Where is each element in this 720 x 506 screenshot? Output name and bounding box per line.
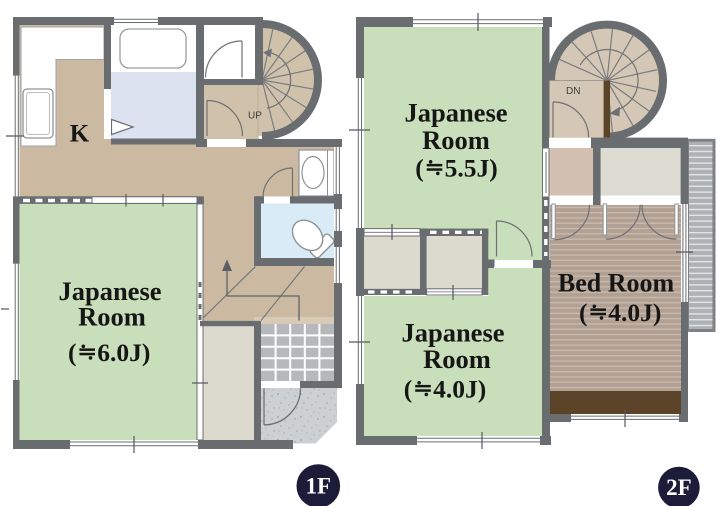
svg-text:(: (	[68, 338, 77, 367]
svg-text:(: (	[579, 298, 588, 327]
svg-text:1F: 1F	[306, 474, 332, 499]
svg-text:4.0J): 4.0J)	[433, 375, 486, 404]
svg-text:(: (	[415, 154, 424, 183]
svg-text:(: (	[404, 375, 413, 404]
svg-text:Room: Room	[423, 344, 491, 374]
svg-text:Room: Room	[422, 125, 490, 155]
svg-text:4.0J): 4.0J)	[608, 298, 661, 327]
svg-text:UP: UP	[248, 111, 262, 122]
svg-text:5.5J): 5.5J)	[445, 154, 498, 183]
svg-text:Bed Room: Bed Room	[558, 269, 675, 298]
svg-text:Japanese: Japanese	[401, 318, 504, 348]
svg-text:DN: DN	[566, 86, 580, 97]
svg-text:Japanese: Japanese	[404, 98, 507, 128]
svg-text:2F: 2F	[666, 475, 692, 500]
svg-text:K: K	[70, 121, 90, 148]
svg-text:Room: Room	[78, 302, 146, 332]
svg-text:6.0J): 6.0J)	[97, 338, 150, 367]
